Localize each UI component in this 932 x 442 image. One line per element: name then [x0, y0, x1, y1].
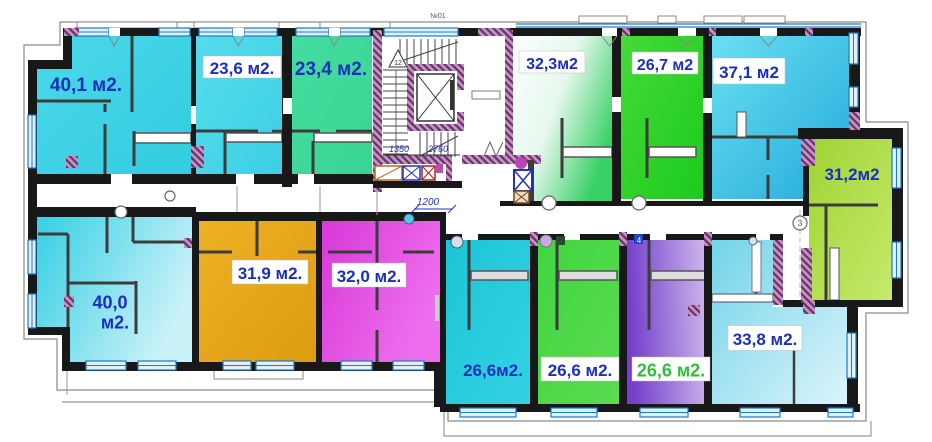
svg-text:м2.: м2.: [101, 312, 129, 332]
svg-text:1200: 1200: [417, 197, 440, 208]
svg-text:23,4 м2.: 23,4 м2.: [295, 59, 367, 80]
svg-text:4: 4: [637, 236, 642, 245]
svg-text:32,0 м2.: 32,0 м2.: [337, 267, 402, 286]
svg-text:26,6м2.: 26,6м2.: [463, 361, 523, 380]
svg-text:26,6 м2.: 26,6 м2.: [548, 361, 613, 380]
svg-text:№01: №01: [430, 13, 445, 20]
svg-text:40,0: 40,0: [92, 292, 127, 312]
svg-text:31,9 м2.: 31,9 м2.: [238, 264, 303, 283]
svg-text:26,6 м2.: 26,6 м2.: [637, 360, 705, 380]
svg-text:32,3м2: 32,3м2: [526, 56, 578, 73]
svg-text:2760: 2760: [427, 144, 448, 154]
svg-text:40,1 м2.: 40,1 м2.: [50, 75, 122, 96]
svg-text:3: 3: [798, 219, 803, 228]
svg-text:12: 12: [394, 60, 402, 67]
svg-text:31,2м2: 31,2м2: [824, 165, 879, 184]
svg-text:33,8 м2.: 33,8 м2.: [733, 330, 798, 349]
svg-text:23,6 м2.: 23,6 м2.: [210, 59, 275, 78]
svg-text:37,1 м2: 37,1 м2: [719, 63, 779, 82]
svg-text:1350: 1350: [389, 144, 409, 154]
svg-text:26,7 м2: 26,7 м2: [637, 57, 693, 74]
